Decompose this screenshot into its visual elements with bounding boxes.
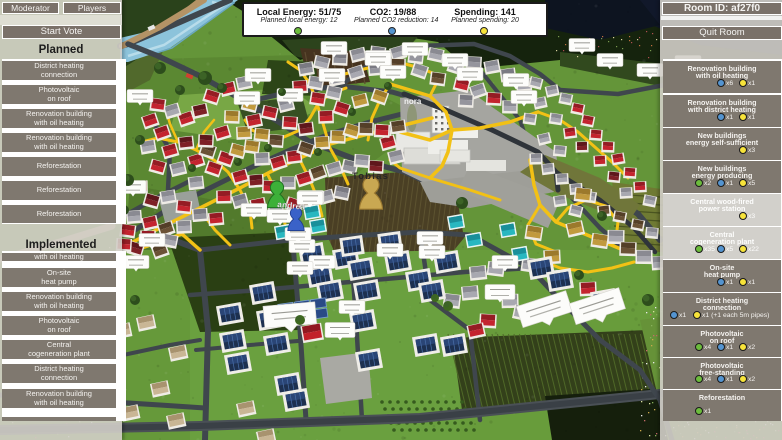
svg-text:nora: nora <box>404 97 422 106</box>
svg-text:Tobias: Tobias <box>352 171 389 182</box>
